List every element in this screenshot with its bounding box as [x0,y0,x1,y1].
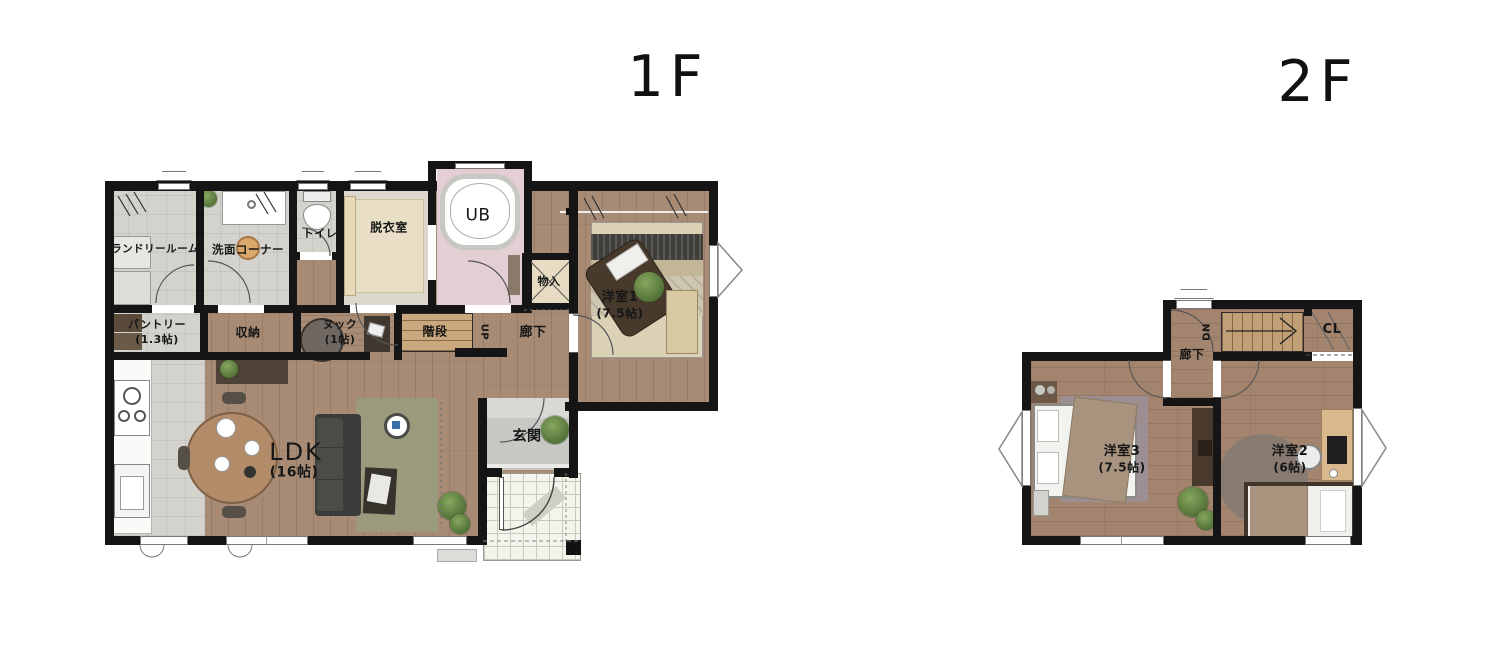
desk-mouse [1329,469,1338,478]
f1-porch-post [566,540,581,555]
f1-bath-shelf [508,255,520,295]
window [298,183,328,190]
window [709,245,718,297]
dining-chair-top [222,392,246,404]
divider-cabinet-detail [1198,440,1212,456]
pantry-size-label: (1.3帖) [135,334,179,346]
bedroom2-blanket [1250,486,1308,536]
window-mullion [266,536,267,545]
window-awning [348,171,388,181]
toilet-door [300,252,332,260]
cooktop-burner-1 [123,387,141,405]
cooktop-burner-3 [134,410,146,422]
bedroom3-size-label: (7.5帖) [1098,461,1145,474]
stairs-dn-label: DN [1202,323,1213,341]
wall [522,253,574,260]
wall [200,313,208,360]
wall [394,313,402,360]
hall-closet-label: 物入 [538,276,561,288]
f1-dressing-mat [350,199,424,293]
wall [522,303,574,310]
wall [478,468,502,477]
desk-monitor [1327,436,1347,464]
wall [293,313,301,360]
nook-size-label: (1帖) [325,334,356,346]
window [1080,536,1164,545]
bedroom2-pillow [1320,490,1346,532]
wall [1213,352,1312,361]
pantry-label: パントリー [128,319,186,331]
hallway2-label: 廊下 [1179,348,1204,361]
window [350,183,386,190]
toilet-label: トイレ [303,228,338,240]
wall [105,181,114,545]
f2-stairs [1221,312,1304,352]
wall [569,353,578,411]
dining-chair-bottom [222,506,246,518]
dressing-label: 脱衣室 [370,221,408,234]
bedroom2-size-label: (6帖) [1273,461,1306,474]
cooktop-burner-2 [118,410,130,422]
vanity-faucet [247,200,256,209]
stairs-label: 階段 [422,325,447,338]
nook-label: ヌック [323,319,358,331]
window [226,536,308,545]
wall [105,352,370,360]
wall [455,348,507,357]
ldk-size-label: (16帖) [270,465,319,480]
window [158,183,190,190]
kitchen-sink-basin [120,476,144,510]
window-awning [156,171,192,181]
laundry-opening [152,305,194,313]
dining-chair-left [178,446,190,470]
sideboard-plant [220,360,238,378]
window [140,536,188,545]
exterior-arc [228,545,252,557]
window [1305,536,1351,545]
wall [105,181,437,191]
dining-pot [244,466,256,478]
bedroom3-unit [1033,490,1049,516]
wall [336,181,344,313]
nightstand-lamp [1035,385,1045,395]
bedroom2-label: 洋室2 [1272,445,1309,459]
storage-label: 収納 [235,326,260,339]
hallway-label: 廊下 [519,326,546,340]
entrance-plant [541,416,569,444]
window [413,536,467,545]
exterior-arc [140,545,164,557]
wall [525,181,718,191]
wall [554,468,578,477]
bedroom3-pillow-1 [1037,410,1059,442]
washroom-opening [218,305,264,313]
bath-label: UB [465,207,490,226]
f1-dressing-cabinet [344,196,356,296]
washroom-label: 洗面コーナー [212,244,284,257]
bay-window-bedroom1 [718,243,742,297]
window [455,163,505,169]
window [1022,410,1031,486]
ldk-label: LDK [269,439,323,465]
wall [522,253,529,310]
floor1-title: 1F [627,44,708,110]
dining-plate-1 [216,418,236,438]
f1-doormat [437,549,477,562]
wall [565,402,718,411]
laundry-label: ランドリールーム [111,244,199,256]
bedroom1-door [569,313,578,353]
dining-plate-3 [244,440,260,456]
cl-label: CL [1323,323,1342,337]
wall [569,191,578,313]
washer-2 [113,271,151,305]
bedroom3-door [1163,360,1171,398]
bedroom1-dresser [666,290,698,354]
ldk-plant-2 [450,514,470,534]
floor-plan-canvas: 1F 2F [0,0,1500,647]
window-awning [296,171,330,181]
wall-clock-face [392,421,400,429]
dressing-door [350,305,396,313]
window [1176,300,1212,309]
f1-entrance-door-leaf [499,477,504,530]
floor2-title: 2F [1277,49,1358,115]
bedroom1-hanging-rail [560,211,708,213]
bay-window-bedroom2 [1362,410,1386,486]
stairs-up-label: UP [479,324,490,340]
bath-fold-door [428,225,436,280]
wall [569,402,578,478]
f1-entrance-upper-step [483,398,569,418]
bath-door [465,305,511,313]
wall [289,181,297,313]
entrance-label: 玄関 [513,429,542,444]
wall [1163,398,1221,406]
bedroom3-label: 洋室3 [1104,445,1141,459]
bay-window-bedroom3 [999,412,1022,486]
bedroom1-size-label: (7.5帖) [596,307,643,320]
bedroom2-door [1213,360,1221,398]
bedroom3-pillow-2 [1037,452,1059,484]
wall [1022,352,1171,361]
window-awning [1174,289,1214,299]
wall [1304,300,1312,316]
dining-plate-2 [214,456,230,472]
nightstand-clock [1047,386,1055,394]
window-mullion [1121,536,1122,545]
bedroom1-label: 洋室1 [602,291,639,305]
toilet-tank [303,191,331,202]
window [1353,408,1362,486]
